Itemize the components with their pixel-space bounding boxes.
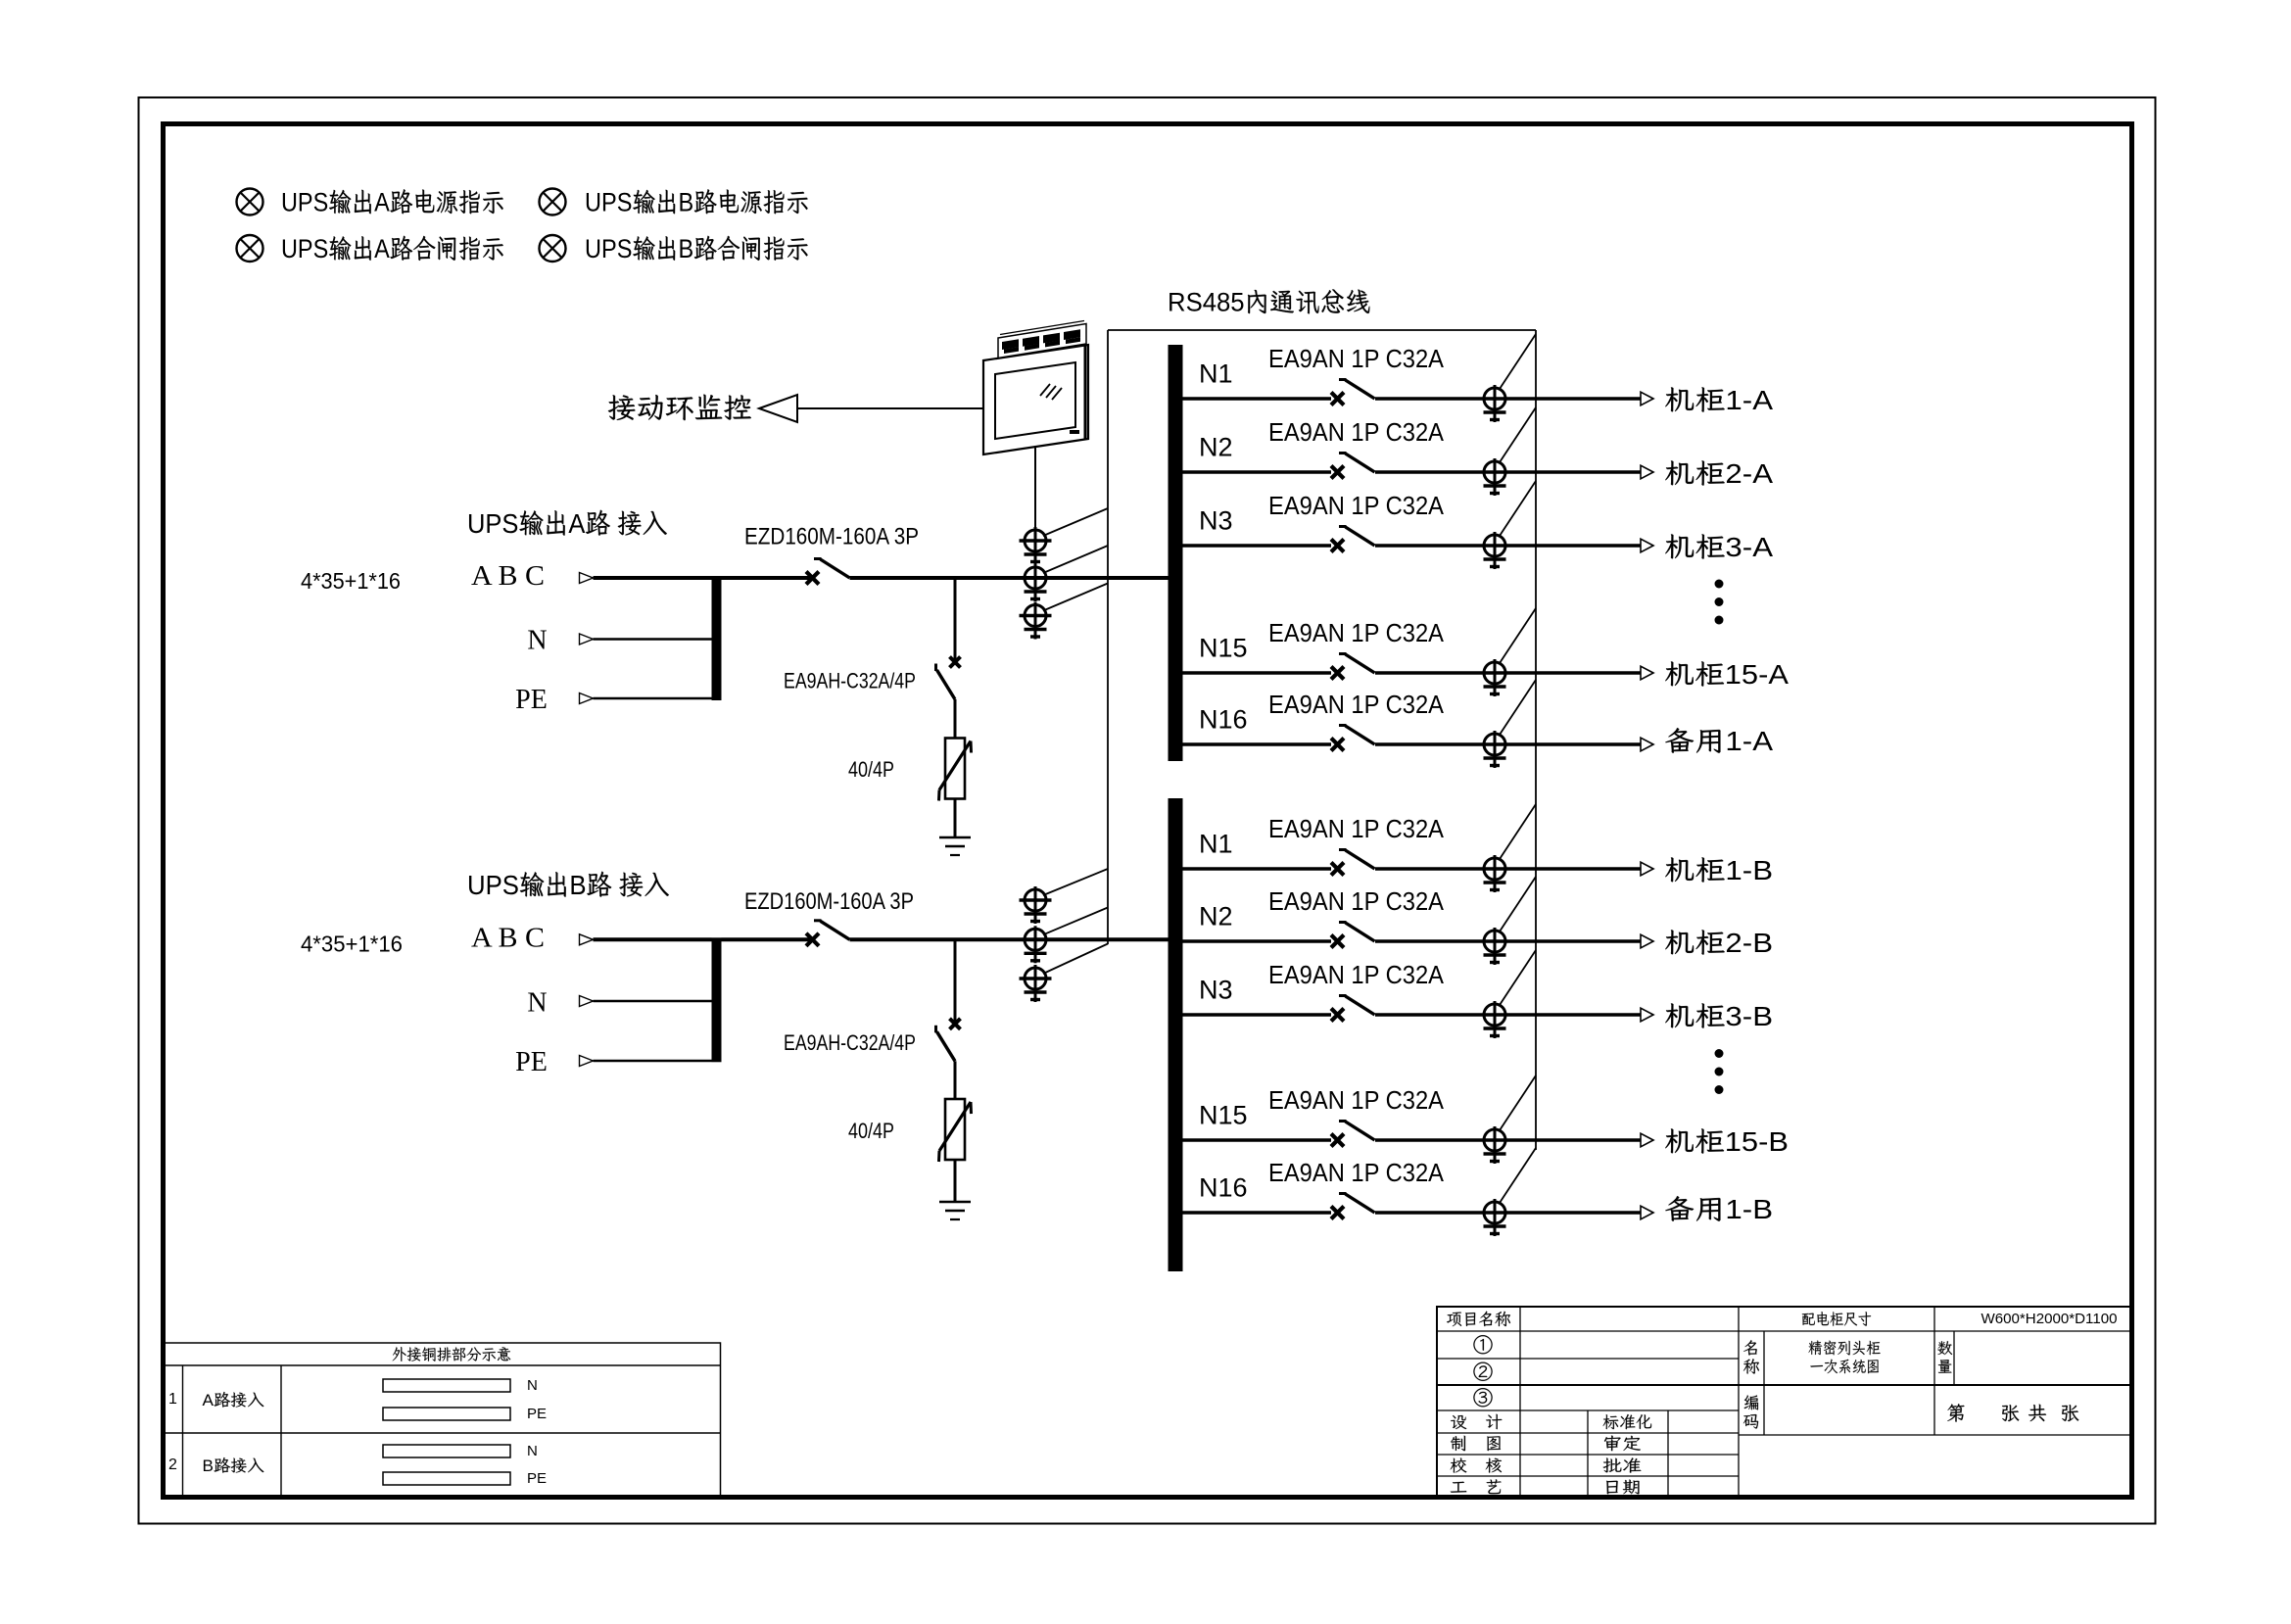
svg-text:A: A <box>1768 659 1789 690</box>
svg-text:P: P <box>601 235 617 264</box>
svg-text:P: P <box>485 508 501 539</box>
svg-text:-: - <box>1742 726 1752 756</box>
svg-text:-: - <box>1742 855 1752 885</box>
svg-text:N: N <box>527 988 547 1019</box>
svg-text:N16: N16 <box>1199 1173 1248 1203</box>
svg-text:R: R <box>1168 287 1186 317</box>
svg-text:N3: N3 <box>1199 506 1233 536</box>
svg-text:S: S <box>501 508 518 539</box>
svg-text:A: A <box>1752 458 1773 489</box>
svg-text:B: B <box>1752 928 1773 958</box>
svg-text:N16: N16 <box>1199 705 1248 735</box>
svg-text:EZD160M-160A 3P: EZD160M-160A 3P <box>744 524 919 550</box>
svg-text:A: A <box>374 188 390 217</box>
svg-text:B: B <box>1768 1126 1789 1157</box>
svg-text:B: B <box>1752 855 1773 885</box>
svg-text:PE: PE <box>527 1406 547 1422</box>
svg-text:-: - <box>1742 385 1752 415</box>
svg-text:5: 5 <box>1742 1126 1758 1157</box>
svg-text:B: B <box>1752 1194 1773 1224</box>
svg-text:3: 3 <box>1725 532 1742 562</box>
svg-text:N1: N1 <box>1199 830 1233 859</box>
svg-text:A B C: A B C <box>471 924 545 954</box>
svg-text:2: 2 <box>1725 928 1742 958</box>
svg-text:5: 5 <box>1230 287 1244 317</box>
svg-text:B: B <box>679 188 694 217</box>
svg-text:4*35+1*16: 4*35+1*16 <box>301 931 403 957</box>
svg-text:EA9AN 1P C32A: EA9AN 1P C32A <box>1268 960 1445 989</box>
svg-text:P: P <box>486 870 502 900</box>
svg-text:EA9AN 1P C32A: EA9AN 1P C32A <box>1268 1085 1445 1115</box>
svg-text:EA9AN 1P C32A: EA9AN 1P C32A <box>1268 491 1445 520</box>
svg-text:-: - <box>1742 532 1752 562</box>
svg-text:EA9AN 1P C32A: EA9AN 1P C32A <box>1268 344 1445 373</box>
svg-text:EA9AN 1P C32A: EA9AN 1P C32A <box>1268 417 1445 447</box>
svg-text:EA9AH-C32A/4P: EA9AH-C32A/4P <box>784 1030 916 1055</box>
svg-text:-: - <box>1742 1194 1752 1224</box>
svg-text:S: S <box>502 870 519 900</box>
svg-text:EA9AN 1P C32A: EA9AN 1P C32A <box>1268 814 1445 843</box>
svg-text:A: A <box>374 235 390 264</box>
svg-text:40/4P: 40/4P <box>848 1119 894 1143</box>
svg-text:S: S <box>617 188 633 217</box>
svg-text:B: B <box>679 235 694 264</box>
svg-text:40/4P: 40/4P <box>848 757 894 782</box>
svg-text:A: A <box>203 1391 215 1409</box>
svg-text:B: B <box>569 870 586 900</box>
svg-text:S: S <box>1186 287 1203 317</box>
svg-text:-: - <box>1758 1126 1768 1157</box>
svg-text:PE: PE <box>515 685 548 715</box>
svg-text:A: A <box>1752 726 1773 756</box>
svg-text:2: 2 <box>1725 458 1742 489</box>
svg-text:A: A <box>1752 532 1773 562</box>
svg-text:2: 2 <box>168 1457 177 1473</box>
svg-text:P: P <box>298 188 313 217</box>
svg-text:P: P <box>601 188 617 217</box>
svg-text:U: U <box>585 188 601 217</box>
svg-text:S: S <box>617 235 633 264</box>
svg-text:1: 1 <box>1725 855 1742 885</box>
svg-text:1: 1 <box>1725 385 1742 415</box>
svg-text:A B C: A B C <box>471 561 545 592</box>
svg-text:N3: N3 <box>1199 976 1233 1005</box>
svg-text:W600*H2000*D1100: W600*H2000*D1100 <box>1981 1311 2118 1327</box>
svg-text:EA9AH-C32A/4P: EA9AH-C32A/4P <box>784 669 916 693</box>
svg-text:EZD160M-160A 3P: EZD160M-160A 3P <box>744 888 914 915</box>
svg-text:-: - <box>1742 928 1752 958</box>
svg-text:EA9AN 1P C32A: EA9AN 1P C32A <box>1268 618 1445 647</box>
svg-text:EA9AN 1P C32A: EA9AN 1P C32A <box>1268 690 1445 719</box>
svg-text:N: N <box>527 626 547 656</box>
svg-text:4: 4 <box>1203 287 1217 317</box>
svg-text:P: P <box>298 235 313 264</box>
svg-text:U: U <box>281 235 298 264</box>
svg-text:U: U <box>467 870 486 900</box>
svg-text:B: B <box>203 1457 214 1475</box>
svg-text:N2: N2 <box>1199 902 1233 931</box>
svg-text:S: S <box>313 235 329 264</box>
svg-text:U: U <box>281 188 298 217</box>
svg-text:1: 1 <box>1725 659 1742 690</box>
svg-text:A: A <box>568 508 585 539</box>
svg-text:1: 1 <box>1725 726 1742 756</box>
svg-text:-: - <box>1742 1001 1752 1031</box>
svg-text:EA9AN 1P C32A: EA9AN 1P C32A <box>1268 1158 1445 1187</box>
svg-text:-: - <box>1758 659 1768 690</box>
svg-text:EA9AN 1P C32A: EA9AN 1P C32A <box>1268 886 1445 916</box>
svg-text:PE: PE <box>515 1047 548 1077</box>
svg-text:1: 1 <box>168 1391 177 1408</box>
svg-text:-: - <box>1742 458 1752 489</box>
svg-text:4*35+1*16: 4*35+1*16 <box>301 568 401 594</box>
svg-text:N15: N15 <box>1199 1101 1248 1130</box>
svg-text:1: 1 <box>1725 1194 1742 1224</box>
svg-text:A: A <box>1752 385 1773 415</box>
svg-text:N15: N15 <box>1199 634 1248 663</box>
svg-text:3: 3 <box>1725 1001 1742 1031</box>
svg-text:S: S <box>313 188 329 217</box>
svg-text:N: N <box>527 1443 538 1459</box>
svg-text:U: U <box>585 235 601 264</box>
svg-text:N2: N2 <box>1199 433 1233 462</box>
svg-text:PE: PE <box>527 1470 547 1487</box>
svg-text:N: N <box>527 1377 538 1394</box>
svg-text:1: 1 <box>1725 1126 1742 1157</box>
svg-text:B: B <box>1752 1001 1773 1031</box>
svg-text:8: 8 <box>1217 287 1230 317</box>
svg-text:5: 5 <box>1742 659 1758 690</box>
svg-text:N1: N1 <box>1199 359 1233 389</box>
svg-text:U: U <box>467 508 485 539</box>
